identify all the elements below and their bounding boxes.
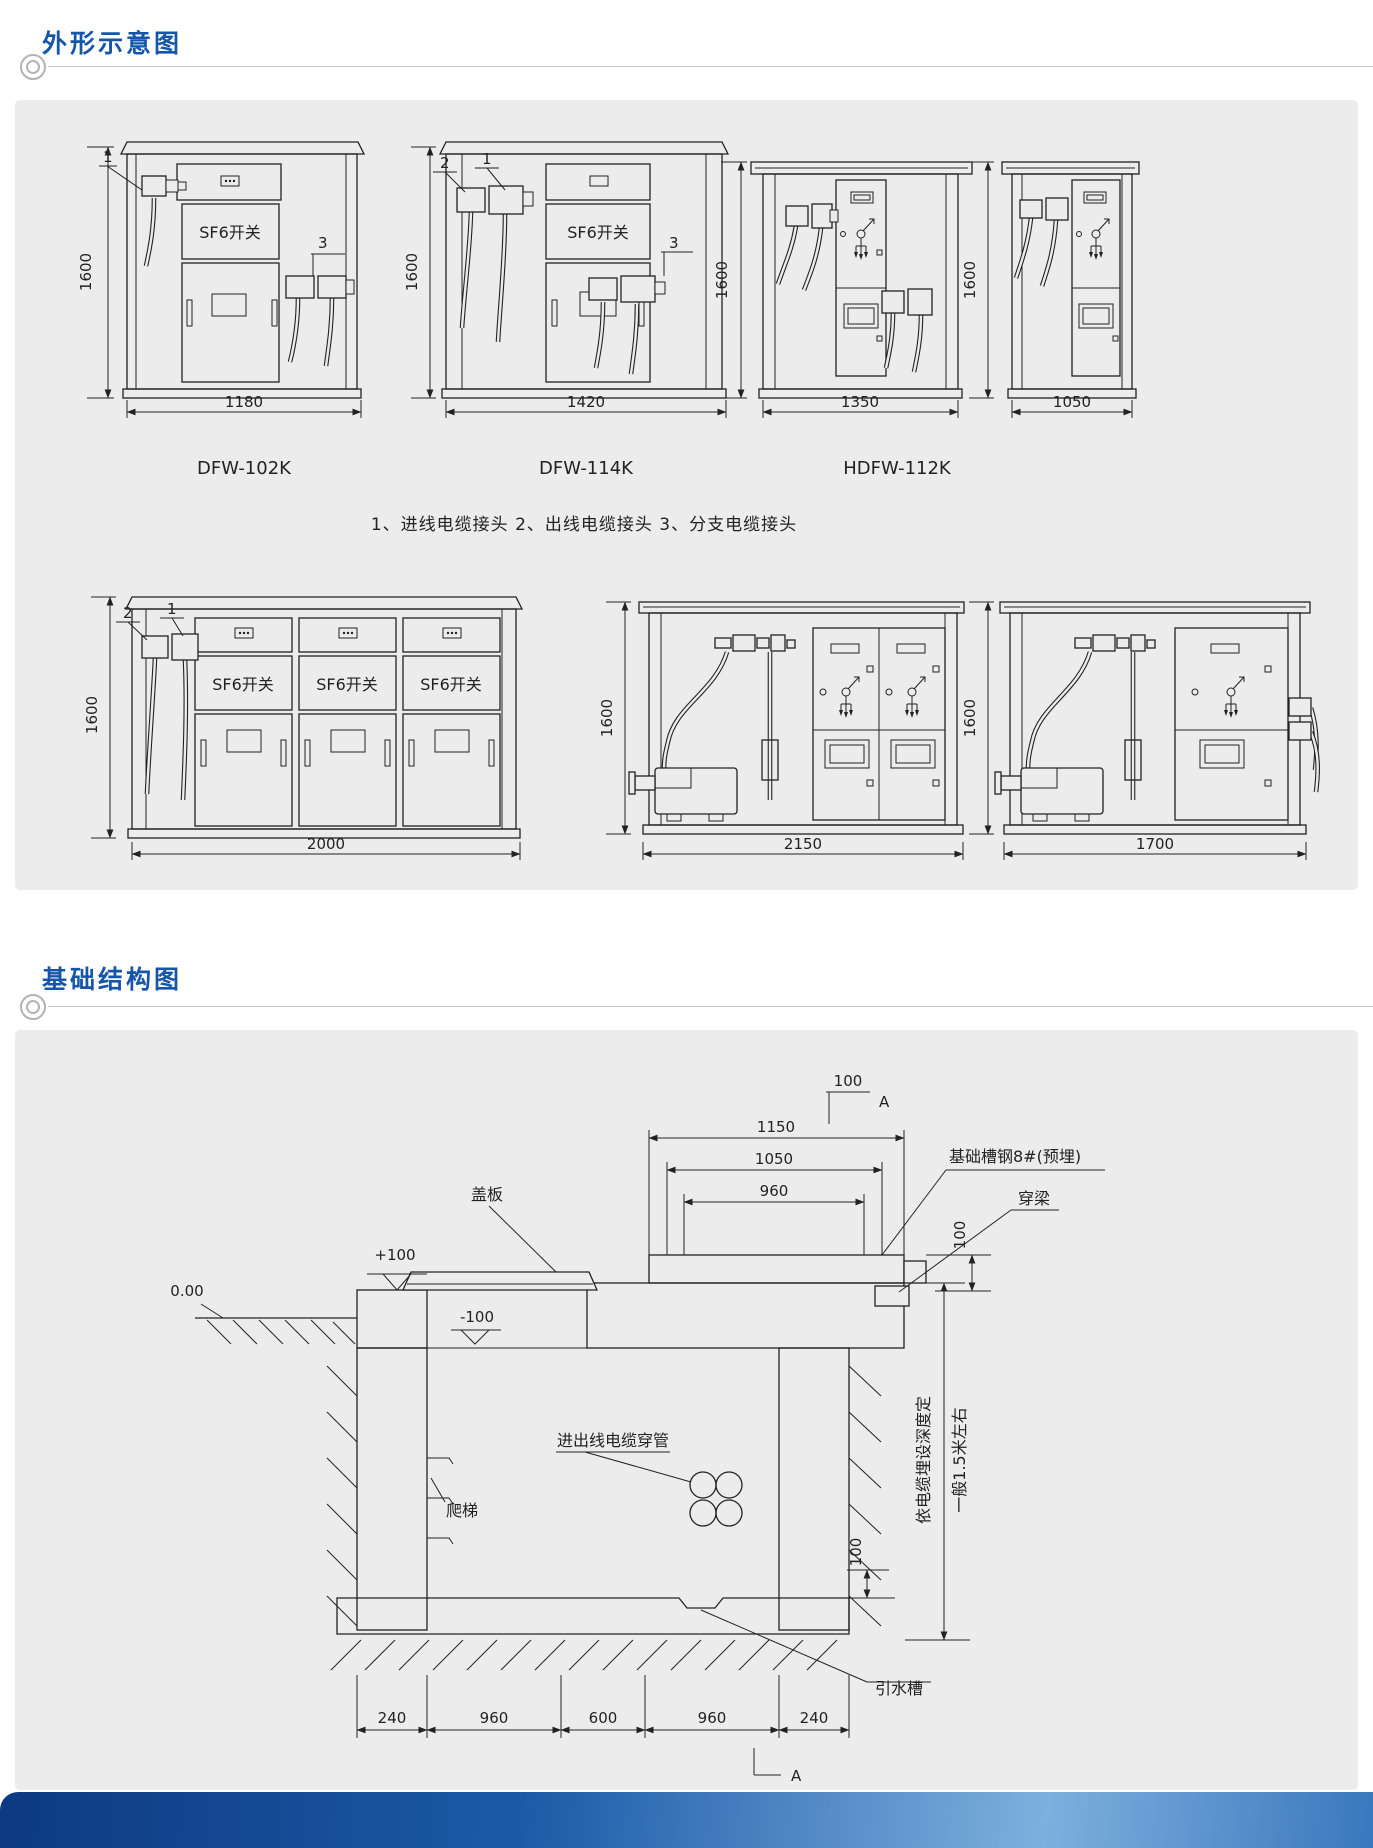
header-rule xyxy=(48,66,1373,67)
level-minus-100: -100 xyxy=(451,1308,501,1344)
dim-1150: 1150 xyxy=(757,1118,795,1136)
top-section-mark: 100 A xyxy=(826,1072,890,1124)
level-zero: 0.00 xyxy=(170,1282,357,1344)
dim-100-top: 100 xyxy=(834,1072,863,1090)
cover-plate-label: 盖板 xyxy=(471,1185,503,1204)
section-letter-bottom: A xyxy=(791,1767,802,1785)
dim-1050: 1050 xyxy=(755,1150,793,1168)
switch-bay: SF6开关 xyxy=(299,618,396,826)
foundation-panel: 100 A 1150 1050 960 基础槽钢8#(预埋) xyxy=(15,1030,1358,1790)
channel-steel-label: 基础槽钢8#(预埋) xyxy=(949,1147,1081,1166)
dim-600: 600 xyxy=(589,1709,618,1727)
ladder-label: 爬梯 xyxy=(446,1501,478,1520)
depth-note-2: 一般1.5米左右 xyxy=(950,1407,969,1512)
level-plus-label: +100 xyxy=(374,1246,415,1264)
cabinet-dfw-102k: SF6开关 1 3 1600 1180 xyxy=(77,142,364,479)
sf6-label: SF6开关 xyxy=(567,223,629,242)
dim-960-right: 960 xyxy=(698,1709,727,1727)
depth-dimension: 依电缆埋设深度定 一般1.5米左右 xyxy=(905,1283,970,1640)
callout-3: 3 xyxy=(669,234,679,252)
level-zero-label: 0.00 xyxy=(170,1282,203,1300)
sf6-label: SF6开关 xyxy=(212,675,274,694)
conduit-label: 进出线电缆穿管 xyxy=(557,1431,669,1450)
vault-roof xyxy=(587,1255,926,1348)
dim-100-beam: 100 xyxy=(951,1221,969,1250)
model-caption: HDFW-112K xyxy=(843,458,952,479)
width-dim: 2150 xyxy=(784,835,822,853)
model-caption: DFW-114K xyxy=(539,458,634,479)
height-dim: 1600 xyxy=(961,261,979,299)
height-dim: 1600 xyxy=(83,696,101,734)
callout-1: 1 xyxy=(482,150,492,168)
depth-note-1: 依电缆埋设深度定 xyxy=(914,1396,933,1524)
cabinet-hdfw-1350: 1600 1350 HDFW-112K xyxy=(713,162,972,479)
height-dim: 1600 xyxy=(598,699,616,737)
header-rule xyxy=(48,1006,1373,1007)
dim-960-left: 960 xyxy=(480,1709,509,1727)
cabinet-hdfw-1050: 1600 1050 xyxy=(961,162,1139,418)
foundation-drawing: 100 A 1150 1050 960 基础槽钢8#(预埋) xyxy=(15,1030,1358,1790)
switch-bay: SF6开关 xyxy=(195,618,292,826)
bottom-dimensions: 240 960 600 960 240 xyxy=(357,1675,849,1738)
catalog-page: 外形示意图 xyxy=(0,0,1373,1848)
cable-conduits: 进出线电缆穿管 xyxy=(556,1431,742,1526)
top-dimensions: 1150 1050 960 xyxy=(649,1118,904,1255)
bottom-section-mark: A xyxy=(754,1748,802,1785)
dim-100-floor: 100 xyxy=(847,1538,865,1567)
section-letter-top: A xyxy=(879,1093,890,1111)
cable-legend: 1、进线电缆接头 2、出线电缆接头 3、分支电缆接头 xyxy=(371,515,797,535)
cabinet-2150: 1600 2150 xyxy=(598,602,964,860)
dim-240-left: 240 xyxy=(378,1709,407,1727)
sf6-label: SF6开关 xyxy=(199,223,261,242)
footer-band xyxy=(0,1792,1373,1848)
width-dim: 1050 xyxy=(1053,393,1091,411)
dim-960: 960 xyxy=(760,1182,789,1200)
width-dim: 1180 xyxy=(225,393,263,411)
dim-240-right: 240 xyxy=(800,1709,829,1727)
height-dim: 1600 xyxy=(961,699,979,737)
beam-label: 穿梁 xyxy=(1018,1189,1050,1208)
height-dim: 1600 xyxy=(713,261,731,299)
outline-drawing: SF6开关 1 3 1600 1180 xyxy=(15,100,1358,890)
width-dim: 1350 xyxy=(841,393,879,411)
width-dim: 1420 xyxy=(567,393,605,411)
sf6-label: SF6开关 xyxy=(316,675,378,694)
height-dim: 1600 xyxy=(403,253,421,291)
cabinet-dfw-114k: SF6开关 2 1 3 1600 xyxy=(403,142,728,479)
floor-offset-dim: 100 xyxy=(847,1538,895,1598)
model-caption: DFW-102K xyxy=(197,458,292,479)
width-dim: 1700 xyxy=(1136,835,1174,853)
cabinet-2000: SF6开关 SF6开关 SF6开 xyxy=(83,597,522,860)
header-ring-inner-icon xyxy=(26,1000,40,1014)
section-title-foundation: 基础结构图 xyxy=(42,960,182,996)
floor-slab: 引水槽 xyxy=(331,1598,931,1698)
width-dim: 2000 xyxy=(307,835,345,853)
height-dim: 1600 xyxy=(77,253,95,291)
channel-steel-callout: 基础槽钢8#(预埋) xyxy=(882,1147,1105,1255)
ladder: 爬梯 xyxy=(427,1458,478,1544)
cover-plate-callout: 盖板 xyxy=(471,1185,556,1272)
callout-2: 2 xyxy=(440,154,450,172)
callout-3: 3 xyxy=(318,234,328,252)
header-ring-inner-icon xyxy=(26,60,40,74)
cabinet-1700: 1600 1700 xyxy=(961,602,1318,860)
callout-1: 1 xyxy=(167,600,177,618)
callout-2: 2 xyxy=(123,604,133,622)
outline-panel: SF6开关 1 3 1600 1180 xyxy=(15,100,1358,890)
pit-walls xyxy=(327,1348,881,1630)
section-title-outline: 外形示意图 xyxy=(42,24,182,60)
level-minus-label: -100 xyxy=(460,1308,494,1326)
sf6-label: SF6开关 xyxy=(420,675,482,694)
switch-bay: SF6开关 xyxy=(403,618,500,826)
